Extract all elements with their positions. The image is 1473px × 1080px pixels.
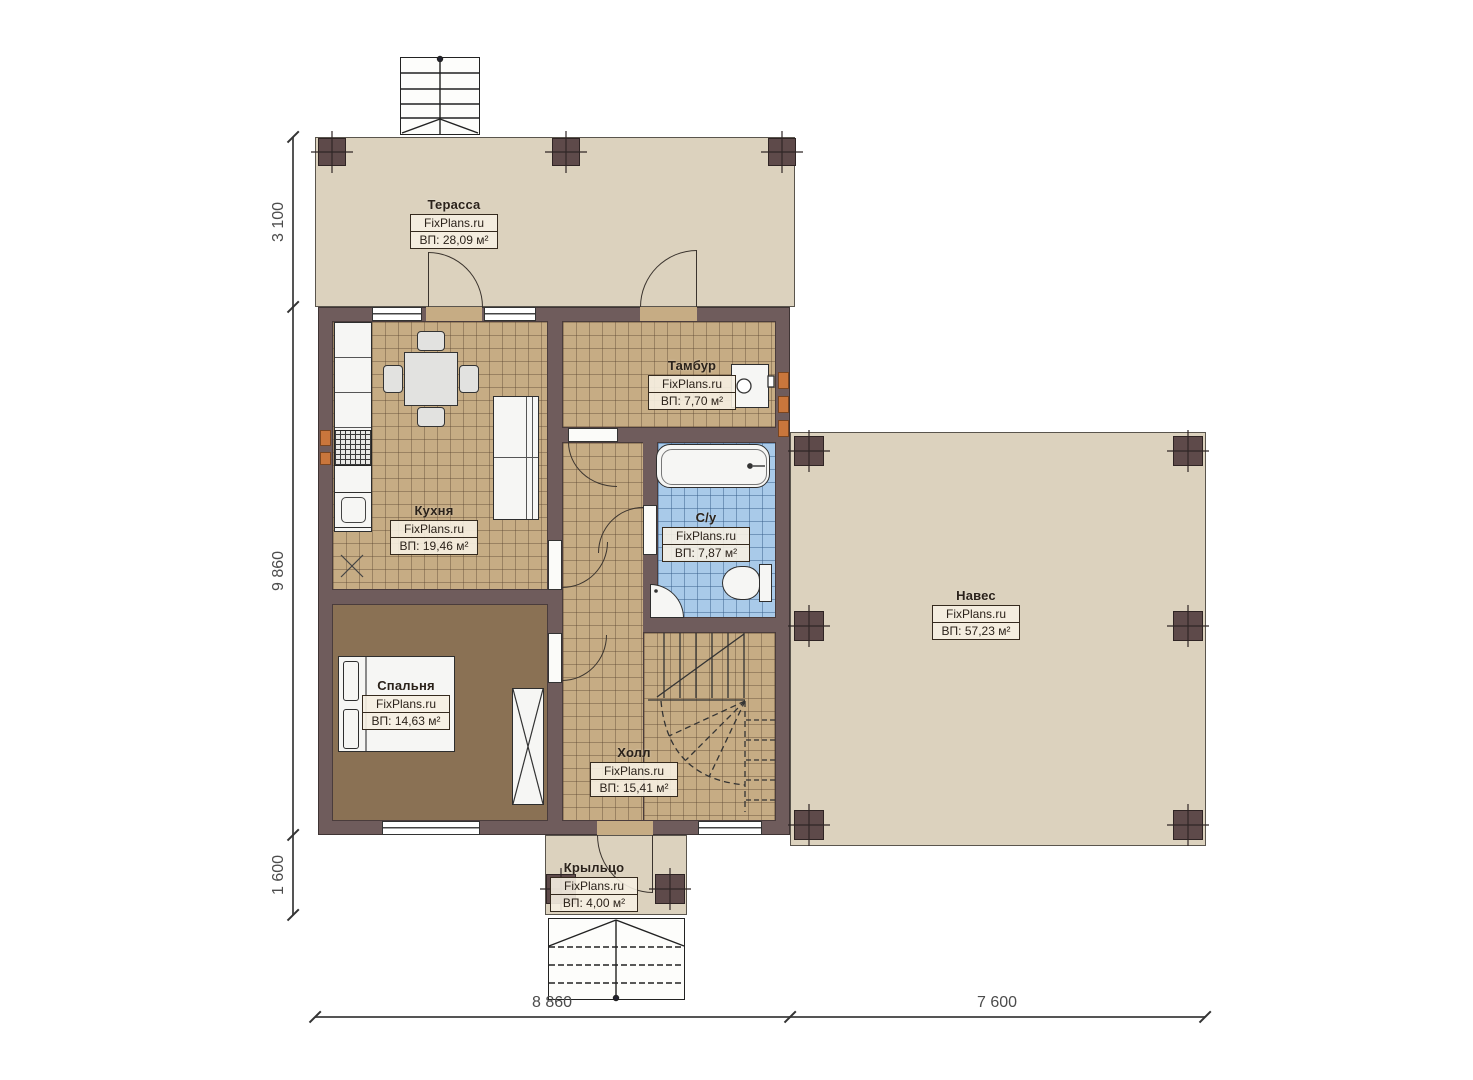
room-info-box: FixPlans.ru ВП: 19,46 м² — [390, 520, 478, 555]
column-post-terrace-center — [552, 138, 580, 166]
dim-label-9860: 9 860 — [270, 551, 288, 591]
column-post-canopy-sw — [794, 810, 824, 840]
column-post-terrace-left — [318, 138, 346, 166]
radiator-vestibule-2 — [778, 396, 789, 413]
room-label-hall: Холл FixPlans.ru ВП: 15,41 м² — [590, 745, 678, 797]
room-name: Тамбур — [648, 358, 736, 373]
room-label-bathroom: С/у FixPlans.ru ВП: 7,87 м² — [662, 510, 750, 562]
room-info-box: FixPlans.ru ВП: 28,09 м² — [410, 214, 498, 249]
room-label-canopy: Навес FixPlans.ru ВП: 57,23 м² — [932, 588, 1020, 640]
room-name: Кухня — [390, 503, 478, 518]
room-area: ВП: 7,70 м² — [649, 393, 735, 409]
washing-machine — [731, 364, 769, 408]
chair-bottom — [417, 407, 445, 427]
column-post-canopy-nw — [794, 436, 824, 466]
exterior-stairs-bottom — [548, 918, 685, 1000]
toilet-tank — [759, 564, 772, 602]
window-bedroom — [382, 821, 480, 835]
room-area: ВП: 4,00 м² — [551, 895, 637, 911]
window-kitchen-right — [484, 307, 536, 321]
door-panel-kitchen — [548, 540, 562, 590]
room-label-porch: Крыльцо FixPlans.ru ВП: 4,00 м² — [550, 860, 638, 912]
window-kitchen-left — [372, 307, 422, 321]
room-name: Спальня — [362, 678, 450, 693]
floor-plan-canvas: Терасса FixPlans.ru ВП: 28,09 м² Тамбур … — [0, 0, 1473, 1080]
dim-label-7600: 7 600 — [977, 994, 1017, 1012]
dim-label-8860: 8 860 — [532, 994, 572, 1012]
column-post-porch-right — [655, 874, 685, 904]
kitchen-table — [404, 352, 458, 406]
door-panel-bathroom — [643, 505, 657, 555]
chair-left — [383, 365, 403, 393]
room-name: С/у — [662, 510, 750, 525]
room-brand: FixPlans.ru — [411, 215, 497, 232]
window-hall — [698, 821, 762, 835]
room-area: ВП: 19,46 м² — [391, 538, 477, 554]
column-post-canopy-ne — [1173, 436, 1203, 466]
column-post-canopy-se — [1173, 810, 1203, 840]
pillow-top — [343, 661, 359, 701]
dimension-line-bottom — [315, 1016, 1205, 1018]
door-opening-entrance — [640, 307, 697, 321]
room-name: Терасса — [410, 197, 498, 212]
room-brand: FixPlans.ru — [363, 696, 449, 713]
room-label-terrace: Терасса FixPlans.ru ВП: 28,09 м² — [410, 197, 498, 249]
room-area: ВП: 28,09 м² — [411, 232, 497, 248]
chair-top — [417, 331, 445, 351]
room-brand: FixPlans.ru — [391, 521, 477, 538]
door-panel-bedroom — [548, 633, 562, 683]
radiator-vestibule-1 — [778, 372, 789, 389]
dim-label-3100: 3 100 — [270, 202, 288, 242]
kitchen-cabinet — [493, 396, 539, 520]
room-name: Холл — [590, 745, 678, 760]
room-area: ВП: 57,23 м² — [933, 623, 1019, 639]
door-opening-porch — [597, 821, 653, 835]
room-info-box: FixPlans.ru ВП: 57,23 м² — [932, 605, 1020, 640]
column-post-canopy-e — [1173, 611, 1203, 641]
room-brand: FixPlans.ru — [933, 606, 1019, 623]
room-info-box: FixPlans.ru ВП: 4,00 м² — [550, 877, 638, 912]
room-label-kitchen: Кухня FixPlans.ru ВП: 19,46 м² — [390, 503, 478, 555]
room-info-box: FixPlans.ru ВП: 7,87 м² — [662, 527, 750, 562]
interior-wall-kitchen-bedroom — [332, 590, 548, 604]
room-brand: FixPlans.ru — [663, 528, 749, 545]
chair-right — [459, 365, 479, 393]
exterior-stairs-top — [400, 57, 480, 135]
kitchen-sink-basin — [341, 497, 366, 523]
room-name: Крыльцо — [550, 860, 638, 875]
room-label-vestibule: Тамбур FixPlans.ru ВП: 7,70 м² — [648, 358, 736, 410]
dim-label-1600: 1 600 — [270, 855, 288, 895]
room-area: ВП: 14,63 м² — [363, 713, 449, 729]
room-brand: FixPlans.ru — [551, 878, 637, 895]
room-name: Навес — [932, 588, 1020, 603]
wardrobe — [512, 688, 544, 805]
room-brand: FixPlans.ru — [591, 763, 677, 780]
room-label-bedroom: Спальня FixPlans.ru ВП: 14,63 м² — [362, 678, 450, 730]
dimension-line-left — [292, 137, 294, 915]
room-area: ВП: 15,41 м² — [591, 780, 677, 796]
radiator-vestibule-3 — [778, 420, 789, 437]
room-info-box: FixPlans.ru ВП: 7,70 м² — [648, 375, 736, 410]
column-post-terrace-right — [768, 138, 796, 166]
radiator-kitchen-1 — [320, 430, 331, 446]
column-post-canopy-w — [794, 611, 824, 641]
stove — [334, 430, 372, 466]
pillow-bottom — [343, 709, 359, 749]
bathtub-inner — [661, 449, 767, 485]
radiator-kitchen-2 — [320, 452, 331, 465]
toilet-bowl — [722, 566, 760, 600]
room-brand: FixPlans.ru — [649, 376, 735, 393]
door-opening-kitchen-terrace — [426, 307, 482, 321]
room-info-box: FixPlans.ru ВП: 15,41 м² — [590, 762, 678, 797]
bathroom-wall-bottom — [643, 618, 776, 632]
room-area: ВП: 7,87 м² — [663, 545, 749, 561]
room-info-box: FixPlans.ru ВП: 14,63 м² — [362, 695, 450, 730]
door-panel-vestibule-hall — [568, 428, 618, 442]
